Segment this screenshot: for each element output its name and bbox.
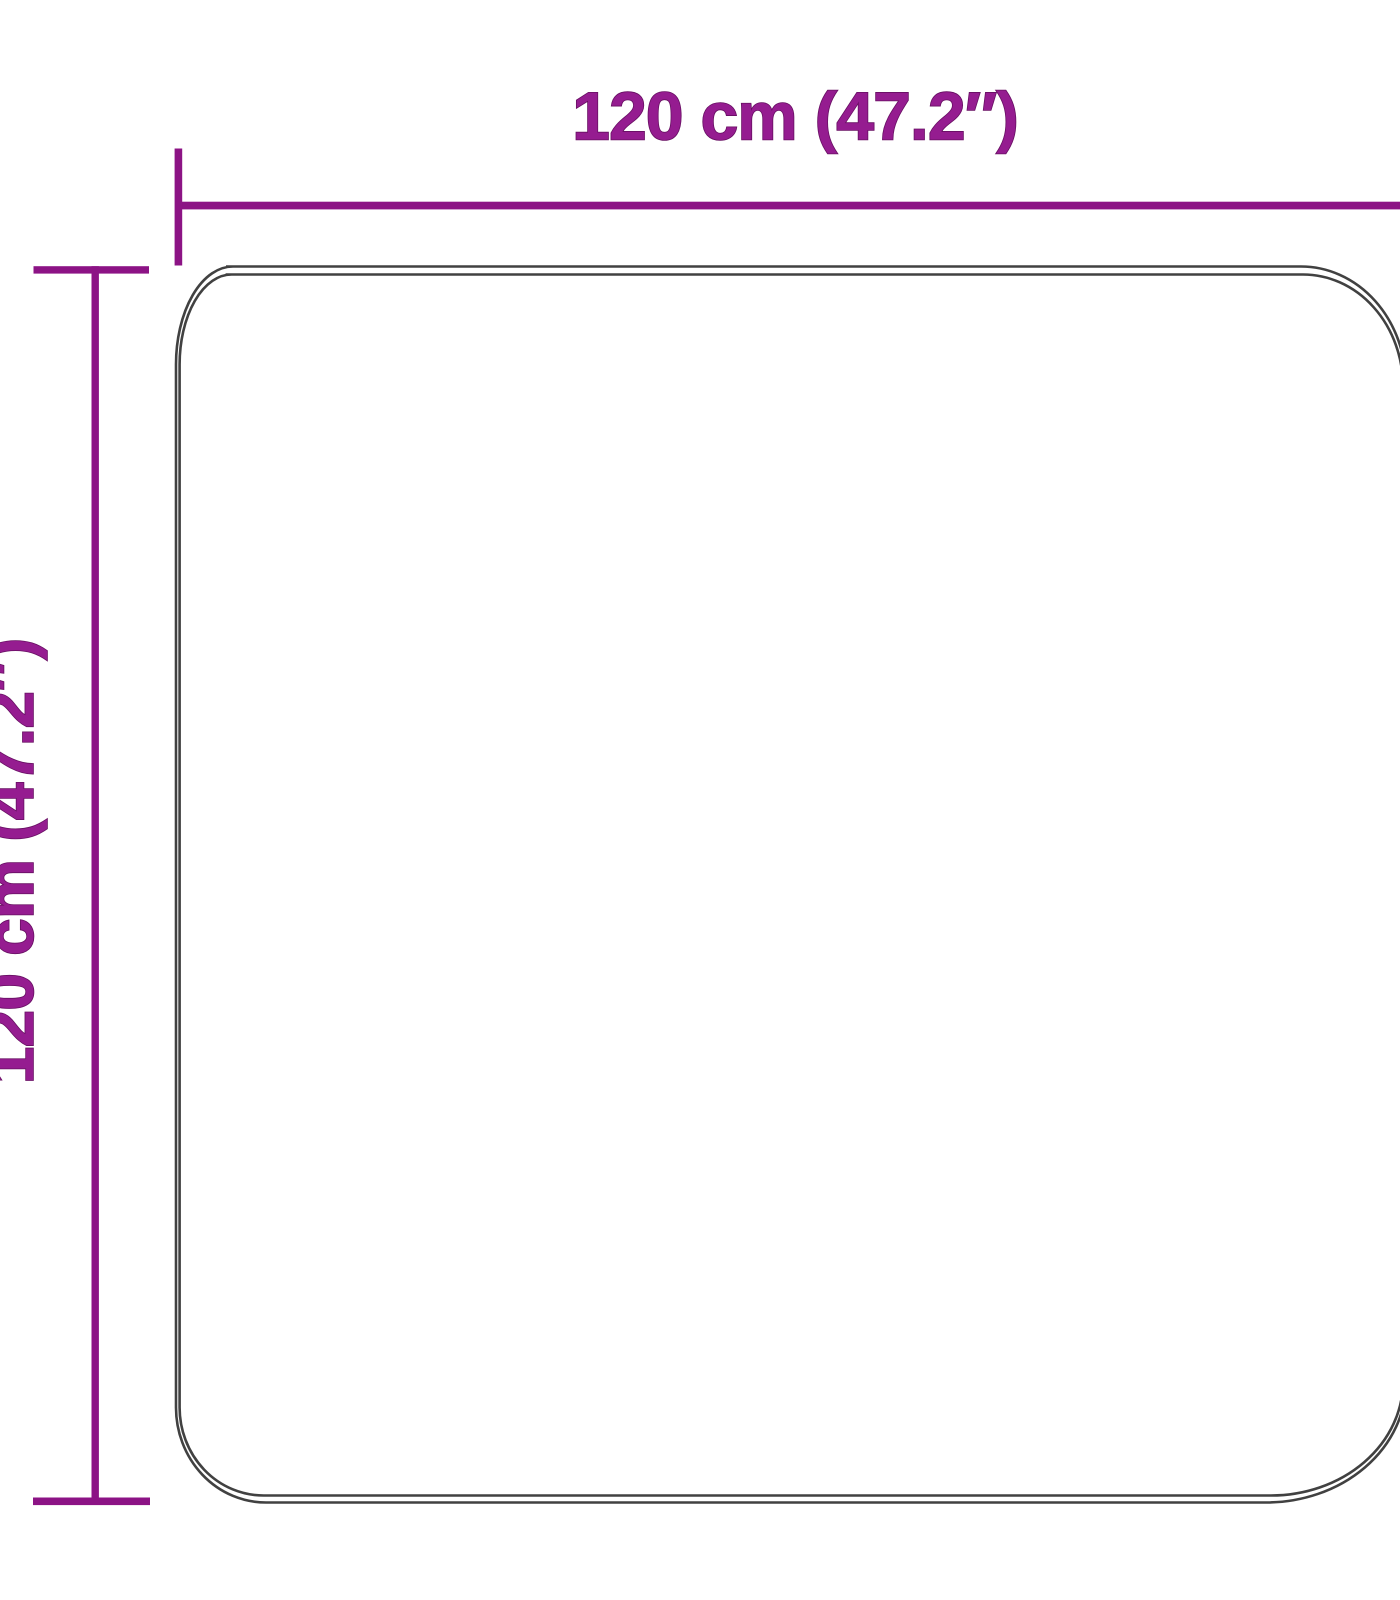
svg-text:120 cm (47.2″): 120 cm (47.2″) — [572, 79, 1018, 155]
svg-text:120 cm (47.2″): 120 cm (47.2″) — [0, 639, 48, 1085]
